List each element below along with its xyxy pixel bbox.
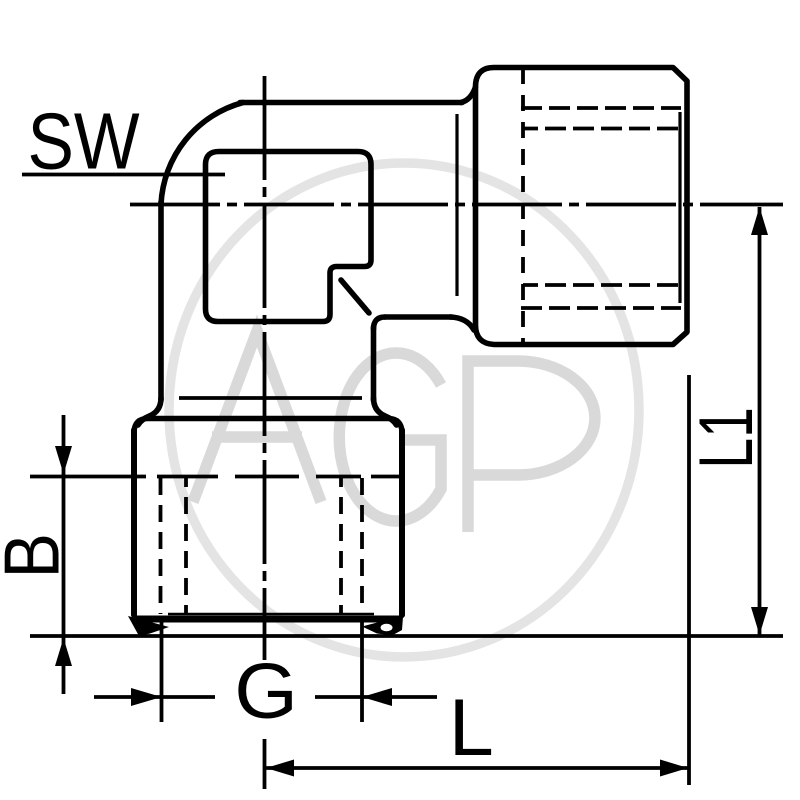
svg-text:L1: L1 bbox=[685, 407, 770, 468]
svg-text:SW: SW bbox=[28, 96, 140, 186]
svg-text:B: B bbox=[0, 533, 76, 579]
svg-text:G: G bbox=[234, 647, 298, 734]
svg-text:L: L bbox=[449, 683, 494, 773]
